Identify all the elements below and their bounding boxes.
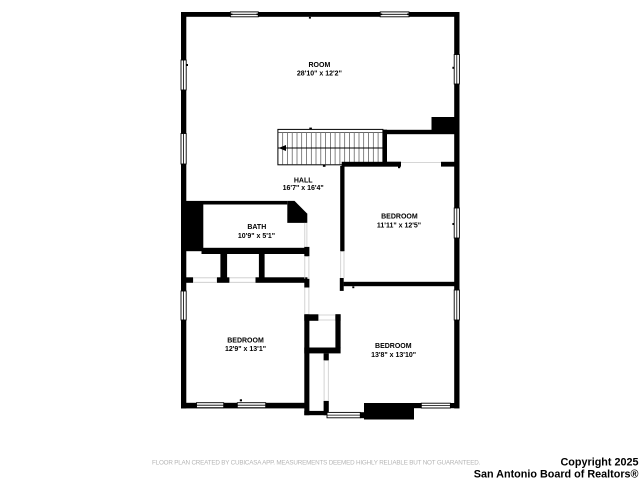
svg-text:28'10" x 12'2": 28'10" x 12'2" [297,71,342,78]
svg-text:BEDROOM: BEDROOM [227,338,264,345]
svg-text:16'7" x 16'4": 16'7" x 16'4" [283,185,324,192]
svg-text:BEDROOM: BEDROOM [381,214,418,221]
svg-text:BEDROOM: BEDROOM [375,343,412,350]
svg-text:ROOM: ROOM [309,62,331,69]
svg-text:FLOOR PLAN CREATED BY CUBICASA: FLOOR PLAN CREATED BY CUBICASA APP. MEAS… [152,460,481,467]
svg-text:Copyright 2025: Copyright 2025 [561,457,639,469]
svg-text:12'9" x 13'1": 12'9" x 13'1" [225,346,266,353]
svg-text:10'9" x 5'1": 10'9" x 5'1" [238,233,275,240]
svg-text:San Antonio Board of Realtors®: San Antonio Board of Realtors® [474,469,639,480]
svg-text:HALL: HALL [294,177,313,184]
svg-text:11'11" x 12'5": 11'11" x 12'5" [377,223,421,230]
svg-text:13'8" x 13'10": 13'8" x 13'10" [371,352,416,359]
svg-text:BATH: BATH [247,224,266,231]
